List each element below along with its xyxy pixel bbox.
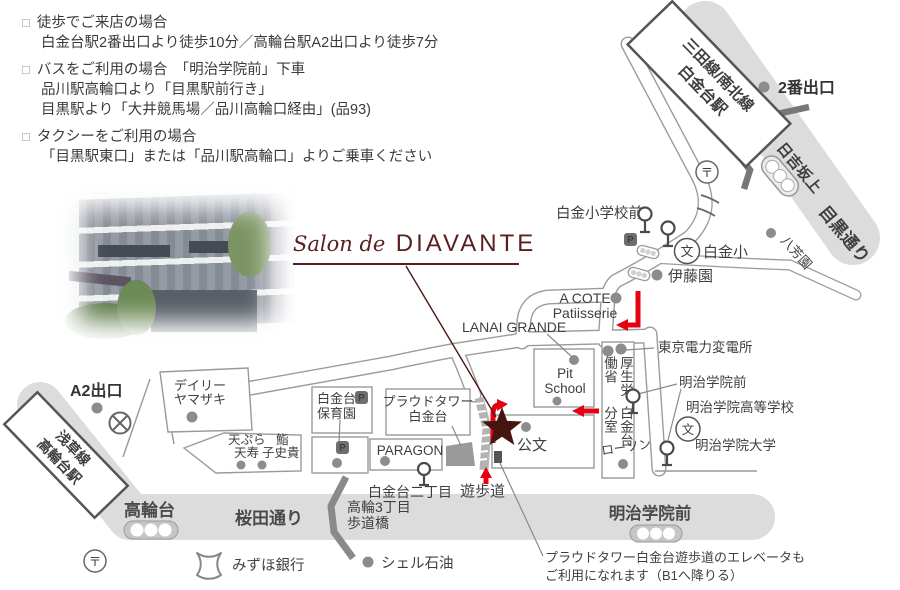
daily-label-1: デイリー	[174, 378, 226, 393]
svg-text:〒: 〒	[701, 166, 714, 180]
exit2-label: 2番出口	[778, 78, 835, 97]
tepco-dot	[603, 346, 614, 357]
parking-icon: P	[624, 233, 637, 246]
elevator-marker	[494, 451, 502, 463]
svg-text:文: 文	[680, 244, 693, 259]
happoen-dot	[766, 228, 776, 238]
sushi-label-1: 鮨	[276, 433, 289, 447]
access-walk-title: 徒歩でご来店の場合	[37, 15, 168, 31]
meiji-univ-label: 明治学院大学	[695, 438, 776, 453]
access-walk-line: 白金台駅2番出口より徒歩10分／高輪台駅A2出口より徒歩7分	[22, 33, 472, 53]
tempura-label-1: 天ぷら	[228, 433, 266, 447]
access-bus-line-1: 品川駅高輪口より「目黒駅前行き」	[22, 80, 472, 100]
access-taxi-line: 「目黒駅東口」または「品川駅高輪口」よりご乗車ください	[22, 147, 472, 167]
svg-text:〒: 〒	[89, 555, 102, 569]
svg-text:P: P	[627, 235, 634, 246]
route-arrow	[627, 291, 638, 325]
signal-small-icon	[636, 244, 660, 259]
pit-dot	[569, 355, 579, 365]
exit2-dot	[759, 82, 770, 93]
shell-label: シェル石油	[381, 555, 454, 572]
paragon-dot	[380, 456, 390, 466]
school-icon: 文	[675, 239, 700, 264]
signal-meijigakuin	[630, 525, 682, 542]
checkbox-bullet-icon: □	[22, 15, 30, 30]
access-item-taxi: □タクシーをご利用の場合	[22, 127, 472, 147]
pit-label-1: Pit	[557, 366, 573, 381]
access-map-page: 日吉坂上 目黒通り 三田線/南北線 白金台駅 浅草線 高輪台駅 2番出口 A2出…	[0, 0, 900, 590]
promenade-label: 遊歩道	[460, 483, 505, 500]
hoikuen-label-1: 白金台	[317, 391, 356, 406]
mizuho-label: みずほ銀行	[232, 557, 305, 574]
proud-tower-label-2: 白金台	[408, 409, 447, 424]
access-item-bus: □バスをご利用の場合 「明治学院前」下車	[22, 60, 472, 80]
street	[521, 336, 649, 339]
hodokyo-label-1: 高輪3丁目	[347, 499, 411, 515]
parking-icon: P	[336, 441, 349, 454]
sakurada-label: 桜田通り	[235, 508, 303, 528]
checkbox-bullet-icon: □	[22, 129, 30, 144]
svg-text:文: 文	[682, 422, 695, 437]
hoikuen-label-2: 保育園	[317, 406, 356, 421]
access-bus-title: バスをご利用の場合 「明治学院前」下車	[37, 62, 305, 78]
access-bus-line-2: 目黒駅より「大井競馬場／品川高輪口経由」(品93)	[22, 100, 472, 120]
post-office-icon: 〒	[84, 550, 106, 572]
post-office-icon: 〒	[696, 161, 718, 183]
exitA2-label: A2出口	[70, 381, 122, 400]
access-directions: □徒歩でご来店の場合 白金台駅2番出口より徒歩10分／高輪台駅A2出口より徒歩7…	[22, 6, 472, 167]
daily-label-2: ヤマザキ	[174, 392, 226, 407]
lanai-grande-label: LANAI GRANDE	[462, 319, 566, 335]
parking-icon: P	[355, 391, 368, 404]
tempura-label-2: 天寿	[234, 446, 259, 460]
hodokyo-label-2: 歩道橋	[347, 515, 389, 531]
acote-label-1: A COTE	[559, 290, 610, 306]
itoen-label: 伊藤園	[668, 268, 713, 285]
paragon-label: PARAGON	[377, 443, 444, 458]
kumon-label: 公文	[517, 437, 547, 454]
checkbox-bullet-icon: □	[22, 62, 30, 77]
tepco-label: 東京電力変電所	[658, 339, 753, 355]
svg-text:P: P	[358, 393, 365, 404]
lawson-dot	[618, 459, 628, 469]
kumon-dot	[521, 422, 531, 432]
signal-takanawadai	[124, 521, 178, 539]
access-taxi-title: タクシーをご利用の場合	[37, 129, 197, 145]
logo-name-text: DIAVANTE	[396, 230, 536, 257]
elevator-note-1: プラウドタワー白金台遊歩道のエレベータも	[545, 550, 805, 565]
daily-dot	[187, 412, 198, 423]
shell-dot	[363, 557, 374, 568]
salon-logo: Salon de DIAVANTE	[293, 230, 519, 265]
street	[251, 340, 522, 388]
takanawadai-stop-label: 高輪台	[124, 500, 175, 520]
sushi-label-2: 子史貴	[262, 446, 300, 460]
pit-label-2: School	[544, 381, 585, 396]
svg-text:P: P	[339, 443, 346, 454]
shirokane-sho-mae-label: 白金小学校前	[556, 205, 643, 222]
nichome-label: 白金台二丁目	[368, 484, 452, 500]
no-exit-icon	[110, 413, 131, 434]
elevator-note-2: ご利用になれます（B1へ降りる）	[545, 568, 743, 583]
signal-pole-icon	[418, 463, 430, 485]
mizuho-bank-icon	[197, 553, 221, 579]
proud-tower-label-1: プラウドタワー	[382, 394, 473, 409]
pit-dot	[553, 397, 562, 406]
meijigakuin-stop-label: 明治学院前	[609, 503, 692, 523]
exitA2-dot	[92, 403, 103, 414]
meiji-hs-label: 明治学院高等学校	[686, 399, 794, 415]
meiji-mae-label: 明治学院前	[679, 374, 747, 390]
access-item-walk: □徒歩でご来店の場合	[22, 13, 472, 33]
parking-dot	[332, 458, 342, 468]
itoen-dot	[652, 270, 663, 281]
tempura-dot	[237, 461, 246, 470]
sushi-dot	[258, 461, 267, 470]
logo-script-text: Salon de	[293, 232, 385, 256]
bus-stop-icon	[639, 208, 652, 233]
tepco-dot	[616, 344, 627, 355]
shirokane-sho-label: 白金小	[703, 244, 748, 261]
acote-dot	[611, 293, 622, 304]
